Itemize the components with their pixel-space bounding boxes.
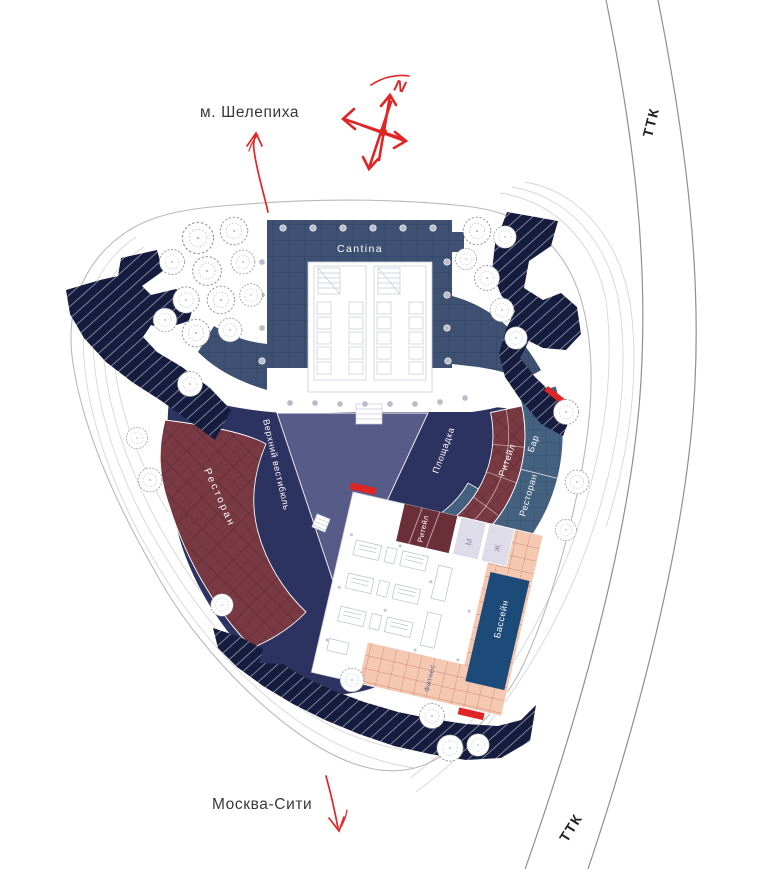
city-arrow <box>326 776 347 831</box>
compass-center-dot <box>379 128 387 136</box>
tree <box>182 222 213 253</box>
building-core <box>308 262 432 392</box>
road-label-ttk-top: ТТК <box>639 106 662 139</box>
north-letter: N <box>392 77 408 96</box>
tree <box>126 427 147 448</box>
tree <box>231 250 255 274</box>
tree <box>565 470 589 494</box>
tree <box>153 308 177 332</box>
tree <box>207 286 235 314</box>
road-label-ttk-bottom: ТТК <box>556 811 586 845</box>
compass-head <box>343 109 355 129</box>
tree <box>455 248 476 269</box>
tree <box>193 257 222 286</box>
cantina-label: Cantina <box>337 243 383 255</box>
metro-label: м. Шелепиха <box>200 104 299 121</box>
tree <box>437 735 463 761</box>
tree <box>160 250 185 275</box>
tree <box>505 327 528 350</box>
tree <box>182 319 210 347</box>
site-plan-canvas: ТТК ТТК <box>0 0 774 869</box>
core-outline <box>308 262 432 392</box>
tree <box>211 594 234 617</box>
tree <box>490 298 514 322</box>
tree <box>467 734 490 757</box>
metro-arrow <box>247 133 268 212</box>
tree <box>554 400 579 425</box>
tree <box>218 318 242 342</box>
tree <box>555 519 576 540</box>
tree <box>178 372 203 397</box>
tree <box>138 468 162 492</box>
tree <box>240 284 263 307</box>
tree <box>494 226 517 249</box>
tree <box>220 217 248 245</box>
site-plan-page: ТТК ТТК <box>0 0 774 869</box>
tree <box>420 704 445 729</box>
tree <box>475 266 500 291</box>
tree <box>340 668 364 692</box>
city-label: Москва-Сити <box>212 796 312 813</box>
tree <box>463 217 491 245</box>
tree <box>173 287 199 313</box>
